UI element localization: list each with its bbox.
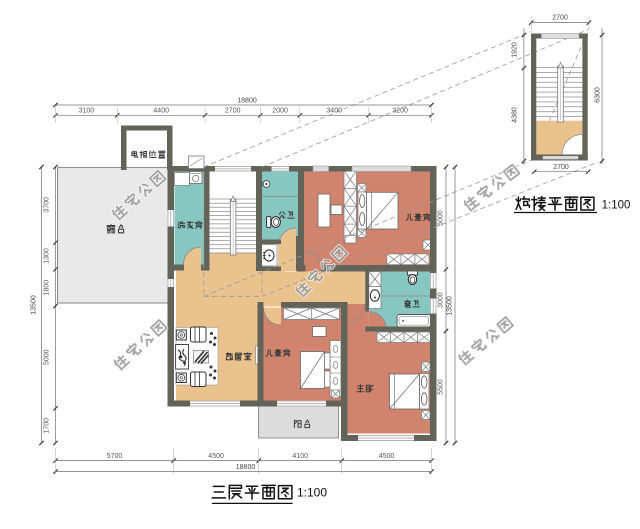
svg-text:2700: 2700 (552, 15, 568, 22)
svg-text:1:100: 1:100 (602, 200, 631, 212)
svg-text:6300: 6300 (595, 87, 602, 103)
svg-text:4100: 4100 (292, 453, 308, 460)
svg-text:13500: 13500 (447, 296, 454, 316)
svg-text:18800: 18800 (236, 464, 256, 471)
svg-text:5700: 5700 (107, 453, 123, 460)
svg-text:3200: 3200 (392, 107, 408, 114)
svg-text:13500: 13500 (31, 295, 38, 315)
svg-text:3400: 3400 (326, 107, 342, 114)
svg-text:1920: 1920 (512, 42, 519, 58)
svg-text:3000: 3000 (437, 292, 444, 308)
svg-text:3100: 3100 (79, 107, 95, 114)
svg-text:5500: 5500 (438, 379, 445, 395)
svg-text:2000: 2000 (272, 107, 288, 114)
svg-text:4400: 4400 (153, 107, 169, 114)
svg-text:5000: 5000 (438, 210, 445, 226)
svg-text:4500: 4500 (379, 453, 395, 460)
svg-text:2700: 2700 (225, 107, 241, 114)
svg-text:3700: 3700 (43, 197, 50, 213)
svg-text:4500: 4500 (208, 453, 224, 460)
svg-text:4380: 4380 (512, 107, 519, 123)
svg-text:1700: 1700 (44, 418, 51, 434)
svg-text:5000: 5000 (44, 349, 51, 365)
svg-text:18800: 18800 (237, 98, 257, 105)
svg-text:2700: 2700 (553, 164, 569, 171)
svg-text:1800: 1800 (43, 280, 50, 296)
svg-text:1:100: 1:100 (297, 486, 327, 500)
svg-text:1300: 1300 (44, 248, 51, 264)
